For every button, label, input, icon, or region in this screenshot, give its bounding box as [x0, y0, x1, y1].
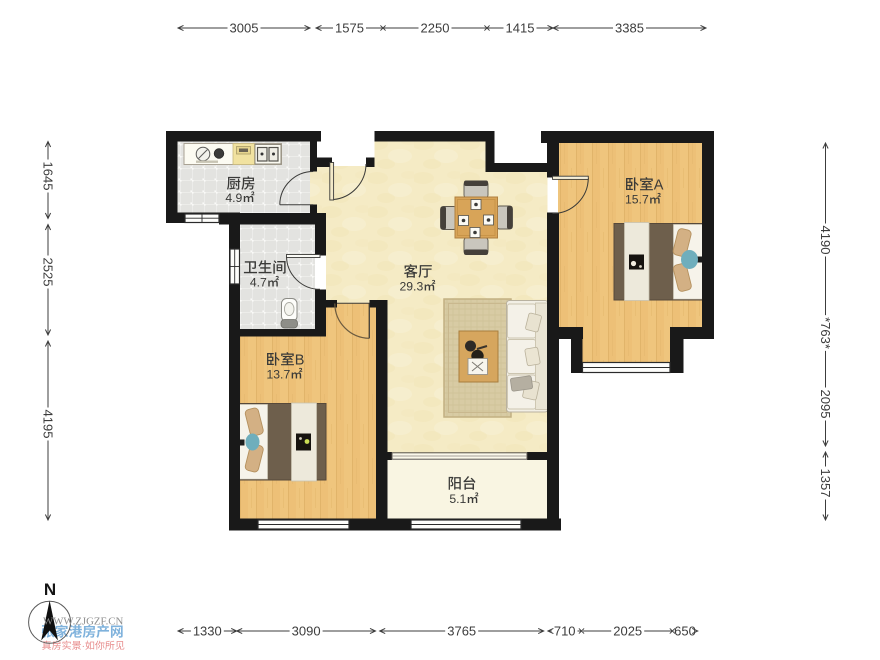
svg-text:4195: 4195: [40, 410, 55, 439]
svg-text:5.1: 5.1: [449, 492, 466, 506]
svg-text:3385: 3385: [615, 21, 644, 36]
svg-text:A: A: [654, 178, 664, 194]
svg-text:1415: 1415: [506, 21, 535, 36]
svg-text:3765: 3765: [447, 624, 476, 639]
svg-text:2025: 2025: [613, 624, 642, 639]
svg-text:1357: 1357: [818, 469, 833, 498]
svg-text:13.7: 13.7: [267, 368, 291, 382]
svg-text:4.7: 4.7: [250, 276, 267, 290]
svg-text:N: N: [44, 580, 56, 599]
svg-text:1575: 1575: [335, 21, 364, 36]
svg-text:29.3: 29.3: [400, 280, 424, 294]
svg-text:·: ·: [82, 641, 85, 652]
svg-text:15.7: 15.7: [625, 193, 649, 207]
svg-text:3090: 3090: [292, 624, 321, 639]
svg-text:710: 710: [554, 624, 576, 639]
svg-text:2095: 2095: [818, 390, 833, 419]
svg-text:1330: 1330: [193, 624, 222, 639]
svg-text:2250: 2250: [421, 21, 450, 36]
svg-text:2525: 2525: [40, 258, 55, 287]
svg-text:4.9: 4.9: [225, 191, 242, 205]
svg-text:3005: 3005: [230, 21, 259, 36]
svg-text:WWW.ZJGZF.CN: WWW.ZJGZF.CN: [43, 616, 124, 628]
svg-text:B: B: [295, 353, 305, 369]
svg-text:650: 650: [674, 624, 696, 639]
svg-text:*763*: *763*: [818, 317, 833, 349]
svg-text:4190: 4190: [818, 226, 833, 255]
svg-text:1645: 1645: [40, 162, 55, 191]
